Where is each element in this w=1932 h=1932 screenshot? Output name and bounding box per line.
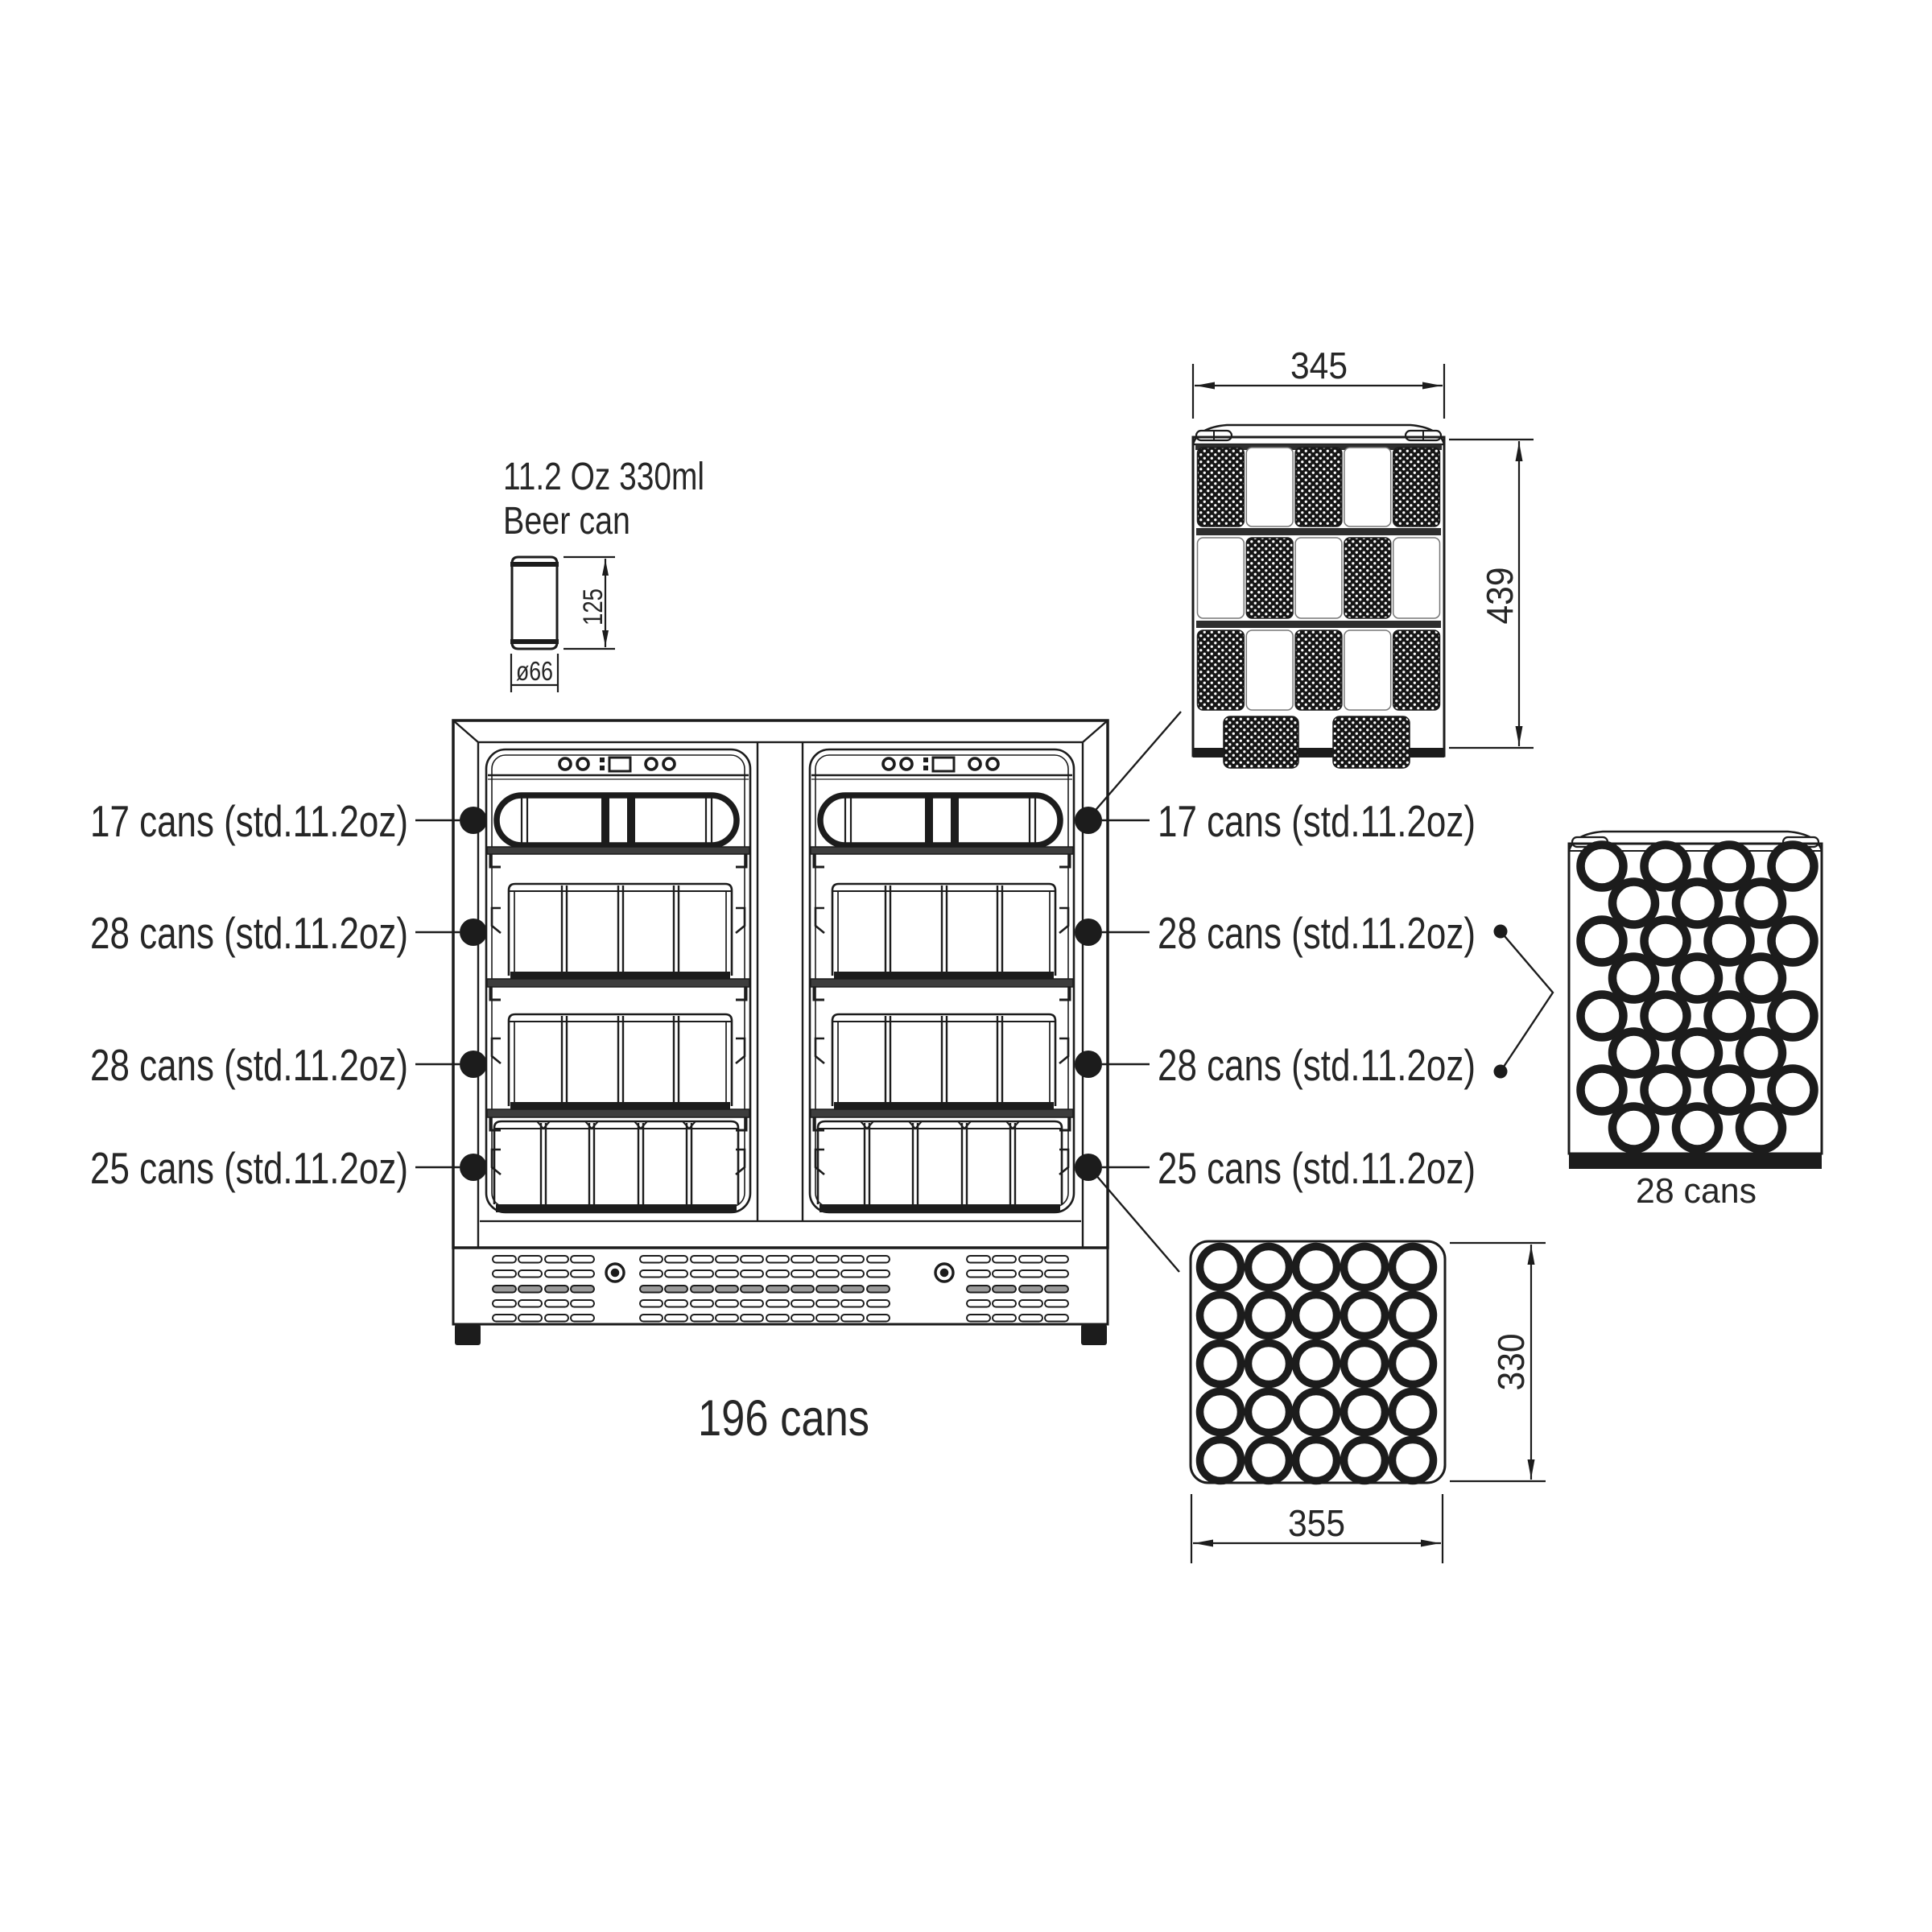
svg-text:17 cans (std.11.2oz): 17 cans (std.11.2oz) [1158, 796, 1476, 846]
svg-text:17 cans (std.11.2oz): 17 cans (std.11.2oz) [90, 796, 408, 846]
svg-text:196 cans: 196 cans [698, 1390, 869, 1447]
svg-text:Beer can: Beer can [503, 500, 630, 543]
svg-text:355: 355 [1288, 1502, 1345, 1544]
svg-text:125: 125 [578, 588, 609, 625]
svg-text:345: 345 [1290, 345, 1348, 386]
svg-text:25 cans (std.11.2oz): 25 cans (std.11.2oz) [1158, 1143, 1476, 1193]
svg-text:25 cans (std.11.2oz): 25 cans (std.11.2oz) [90, 1143, 408, 1193]
svg-text:28 cans (std.11.2oz): 28 cans (std.11.2oz) [90, 1040, 408, 1090]
svg-text:28 cans (std.11.2oz): 28 cans (std.11.2oz) [90, 908, 408, 958]
svg-text:ø66: ø66 [516, 656, 553, 686]
svg-text:439: 439 [1479, 568, 1521, 625]
svg-text:28 cans: 28 cans [1636, 1171, 1757, 1211]
svg-text:28 cans (std.11.2oz): 28 cans (std.11.2oz) [1158, 908, 1476, 958]
svg-text:330: 330 [1490, 1334, 1532, 1391]
svg-text:28 cans (std.11.2oz): 28 cans (std.11.2oz) [1158, 1040, 1476, 1090]
svg-text:11.2 Oz 330ml: 11.2 Oz 330ml [503, 456, 704, 498]
